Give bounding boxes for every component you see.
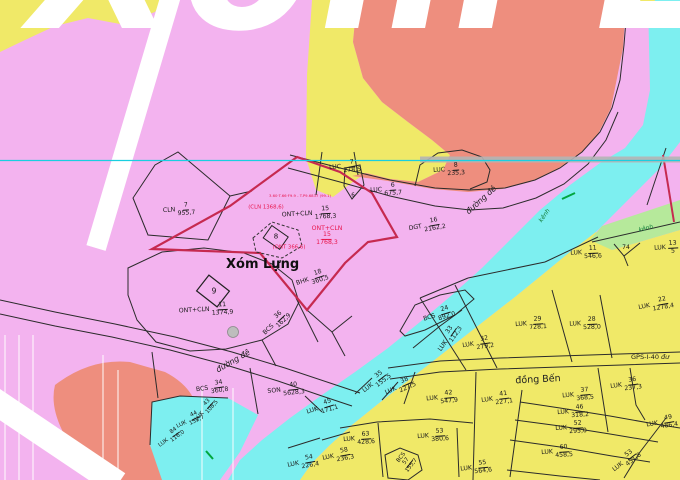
gps-marker-label: GPS-I-40 đư [631, 354, 669, 361]
road-label: đường đê [214, 348, 251, 375]
parcel-label: CLN7955,7 [162, 202, 195, 218]
parcel-label: LUK45171,1 [305, 397, 339, 419]
red-annotation: 3.60·T.66·F9.9 - T.P9.6837 (99.1) [269, 194, 331, 198]
parcel-label: LUK63428,6 [343, 431, 375, 447]
parcel-label: DGT162162,2 [408, 216, 447, 236]
place-label: đồng Bến [515, 374, 561, 386]
parcel-label: LUK135 [654, 240, 678, 255]
parcel-label: BCS34360,8 [195, 379, 229, 397]
road-stub-text: đư [661, 353, 669, 361]
plot-number: 74 [622, 245, 630, 251]
parcel-label: LUK36237,3 [610, 376, 643, 394]
plot-number: 8 [274, 234, 278, 241]
parcel-label: LUK33112,3 [434, 321, 463, 355]
red-annotation: (ONT 366,6) [273, 245, 306, 250]
parcel-label: LUK29728,1 [515, 316, 547, 332]
cadastral-map-viewport[interactable]: Xóm Lựng Xóm Lựng GPS-I-40 đư CLN7955,7O… [0, 0, 680, 480]
parcel-label: LUK53451,8 [609, 446, 642, 476]
parcel-label: LUK42547,9 [426, 390, 459, 407]
parcel-label: LUK28528,0 [569, 317, 601, 332]
road-label: đường đê [464, 184, 498, 216]
parcel-label: LUK221278,4 [637, 295, 674, 315]
parcel-label: LUK54226,4 [286, 453, 319, 472]
parcel-label: LUK84116,0 [156, 424, 187, 451]
parcel-label: LUC6675,7 [370, 182, 402, 198]
gps-marker-text: GPS-I-40 [631, 353, 659, 361]
parcel-labels: Xóm Lựng GPS-I-40 đư CLN7955,7ONT+CLN111… [0, 0, 680, 480]
plot-number: 6 [351, 193, 355, 199]
parcel-label: LUK46318,2 [557, 404, 589, 420]
parcel-label: LUK52295,0 [555, 420, 587, 436]
parcel-label: LUK55564,6 [460, 459, 493, 476]
parcel-label: BHK18360,5 [294, 267, 329, 290]
parcel-label: BCS57155,7 [395, 450, 419, 474]
parcel-label: ONT+CLN111374,9 [178, 302, 233, 319]
parcel-label: BCS36162,9 [260, 307, 293, 339]
parcel-label: LUK37368,5 [562, 387, 595, 404]
parcel-label: LUK32279,2 [461, 335, 494, 353]
parcel-label: ONT+CLN151768,3 [312, 226, 343, 246]
parcel-label: LUK60458,5 [541, 444, 573, 460]
parcel-label: LUK11546,6 [570, 246, 602, 261]
parcel-label: SON405628,3 [267, 381, 305, 399]
village-label: Xóm Lựng [226, 257, 299, 272]
parcel-label: LUK49486,4 [645, 414, 678, 433]
canal-label: kênh [538, 208, 551, 224]
canal-label: kênh [638, 224, 654, 233]
parcel-label: LUC7278,5 [329, 159, 362, 175]
parcel-label: LUC8235,3 [433, 162, 465, 178]
plot-number: 9 [212, 287, 217, 295]
parcel-label: ONT+CLN151768,3 [281, 206, 336, 223]
red-annotation: (CLN 1368,6) [248, 205, 284, 210]
parcel-label: LUK58236,3 [321, 446, 354, 465]
parcel-label: LUK41227,1 [481, 390, 514, 408]
parcel-label: LUK53380,6 [417, 428, 449, 444]
